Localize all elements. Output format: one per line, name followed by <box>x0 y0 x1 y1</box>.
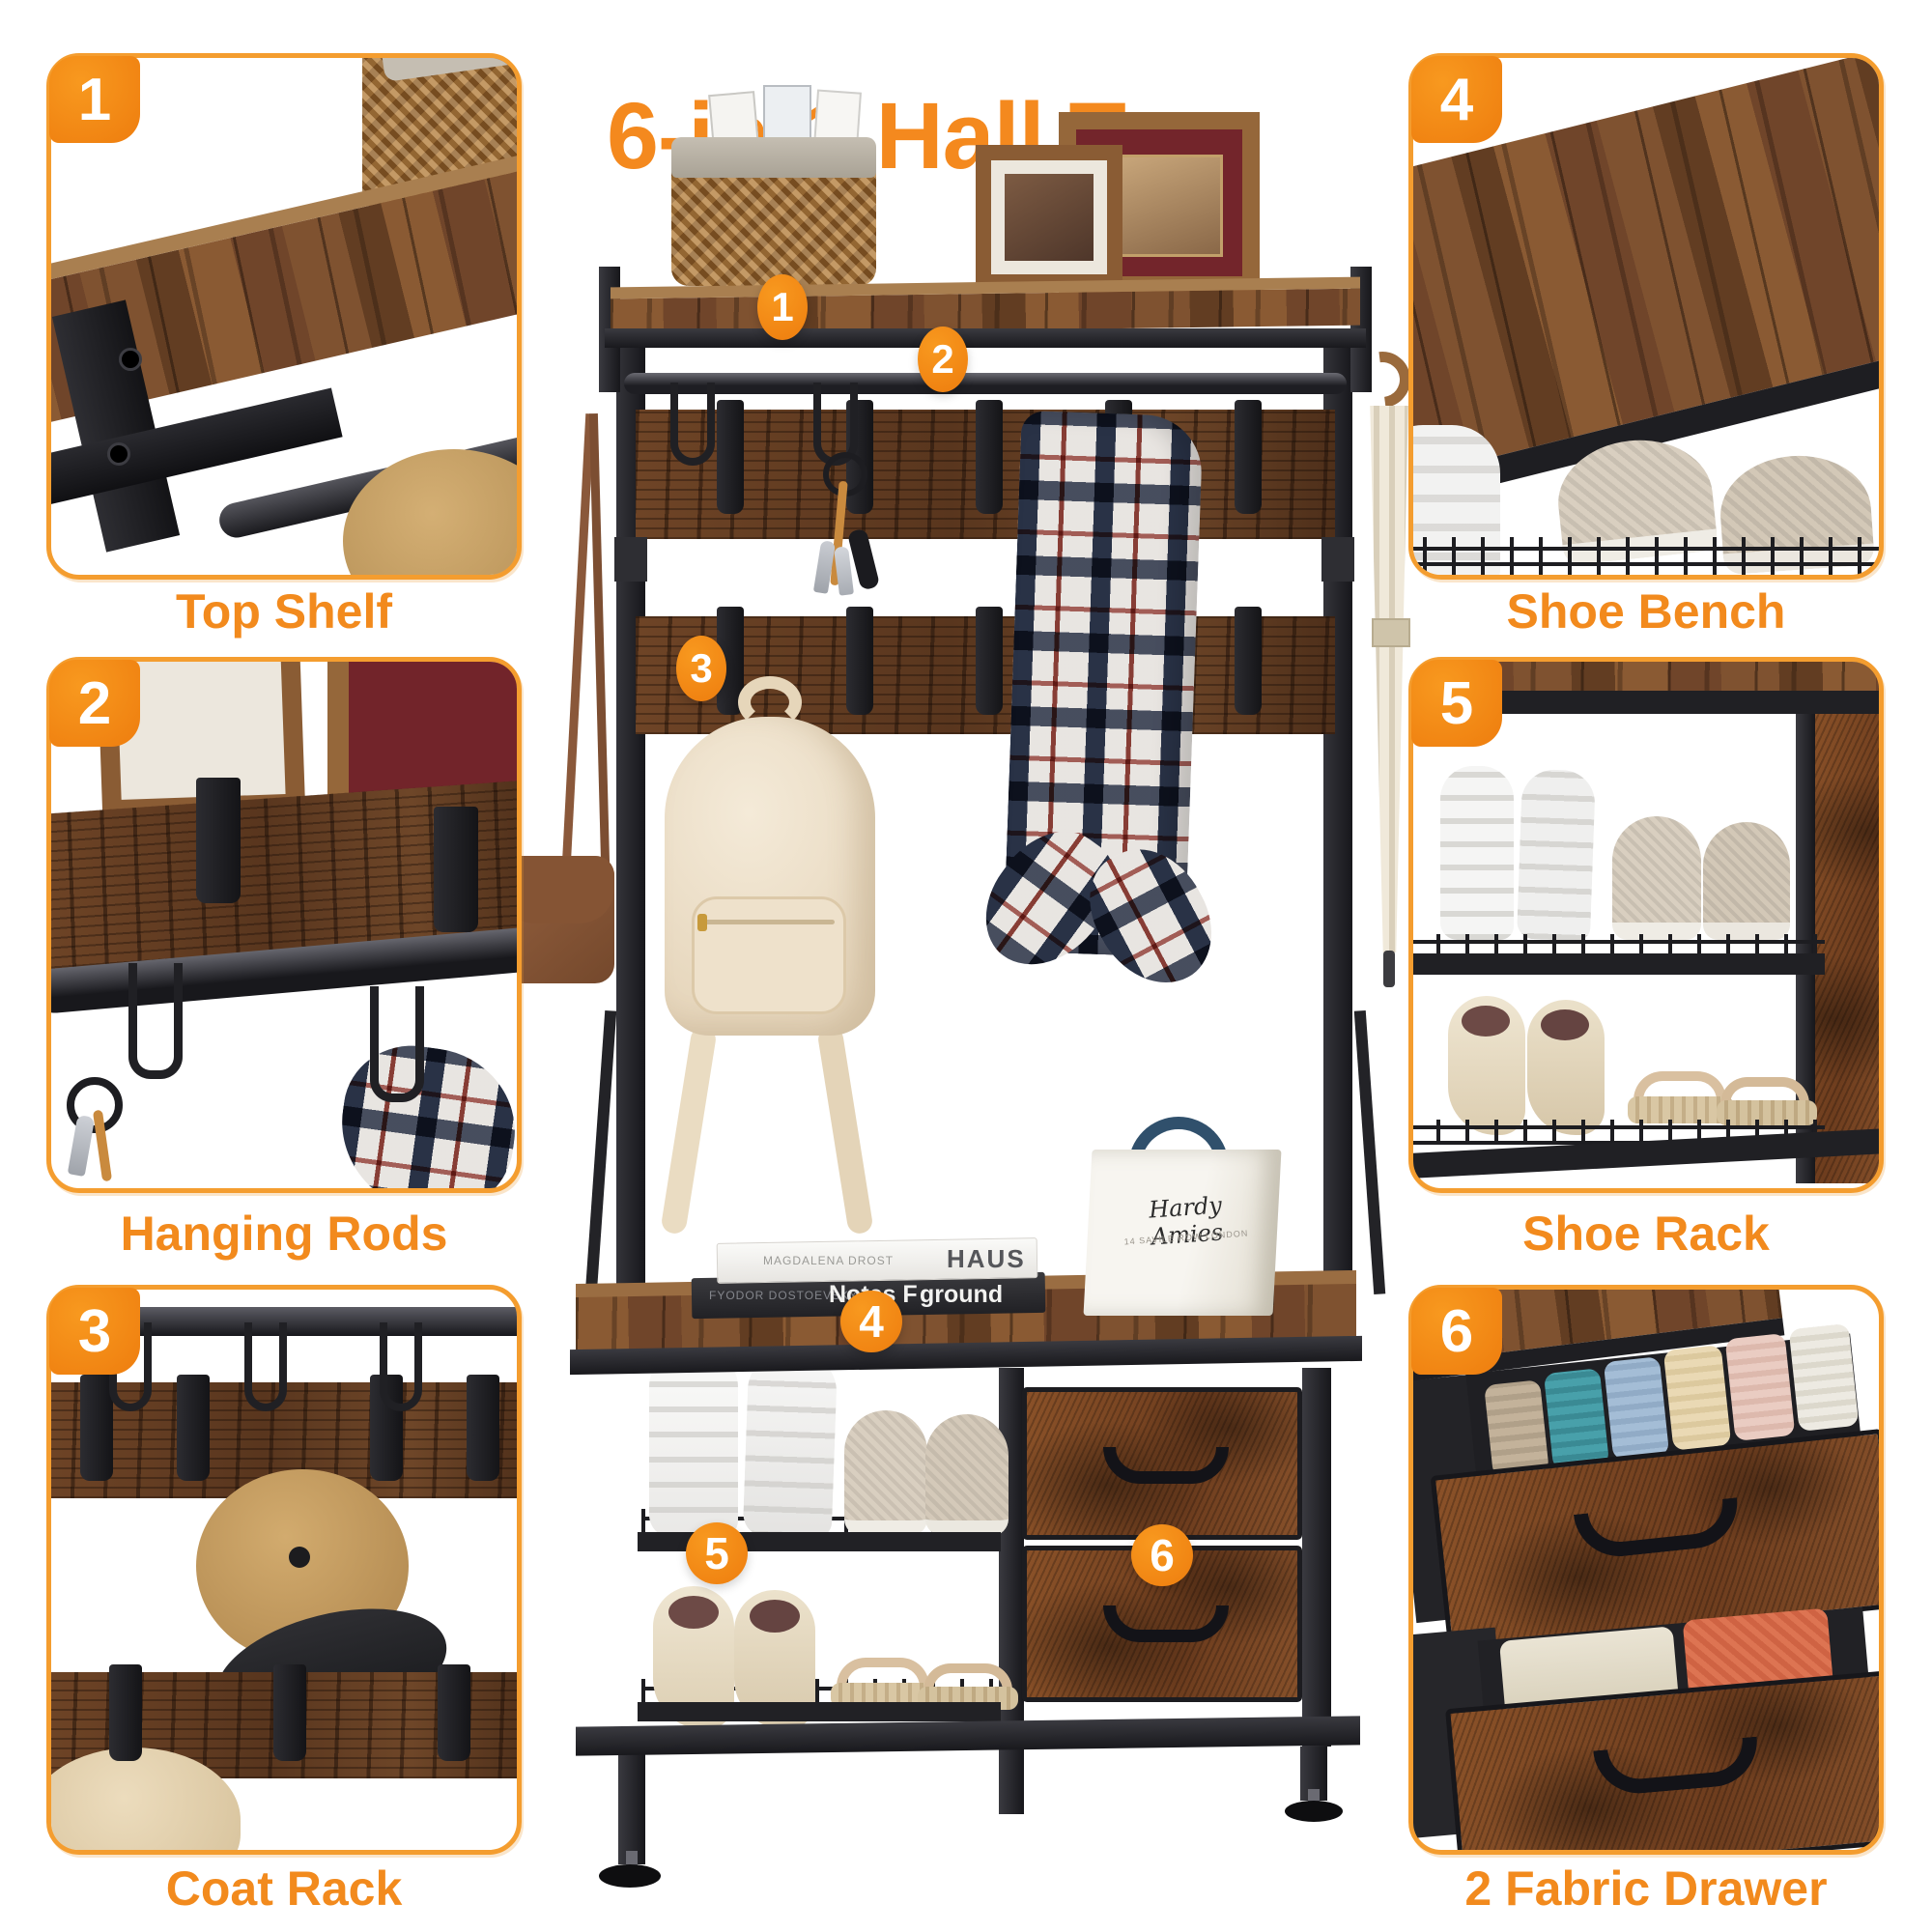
flat-hook <box>717 400 744 514</box>
top-shelf-board <box>611 277 1360 336</box>
key <box>834 546 854 595</box>
panel-label-shoe-bench: Shoe Bench <box>1408 583 1884 639</box>
crossbody-bag-strap <box>589 413 610 866</box>
callout-3-number: 3 <box>690 645 712 692</box>
panel-number-badge: 5 <box>1411 660 1502 747</box>
tan-hat <box>343 449 517 575</box>
panel-number-badge: 3 <box>49 1288 140 1375</box>
panel-number: 3 <box>78 1297 111 1366</box>
callout-4-number: 4 <box>859 1295 884 1348</box>
beige-sneaker <box>925 1414 1009 1536</box>
white-boot <box>1440 766 1514 940</box>
panel-label-coat-rack: Coat Rack <box>46 1861 522 1917</box>
callout-2-number: 2 <box>931 336 953 383</box>
panel-label-shoe-rack: Shoe Rack <box>1408 1206 1884 1262</box>
backpack-zipper-pull <box>697 914 707 931</box>
pump-interior <box>750 1600 800 1633</box>
shoe-shelf-bar-lower <box>638 1702 1001 1721</box>
fabric-drawer-closeup-photo <box>1413 1290 1879 1850</box>
panel-number: 5 <box>1440 669 1473 738</box>
folded-clothes <box>1604 1356 1669 1461</box>
white-boot <box>1517 769 1596 942</box>
black-book-title-right: ground <box>920 1281 1003 1309</box>
coat-rack-closeup-photo <box>51 1290 517 1850</box>
feature-panel-hanging-rods: 2 <box>46 657 522 1193</box>
callout-5: 5 <box>686 1522 748 1584</box>
flat-hook <box>434 807 478 932</box>
panel-number: 1 <box>78 66 111 134</box>
feature-panel-fabric-drawers: 6 <box>1408 1285 1884 1855</box>
white-boot <box>649 1349 738 1538</box>
feature-panel-coat-rack: 3 <box>46 1285 522 1855</box>
panel-label-top-shelf: Top Shelf <box>46 583 522 639</box>
umbrella-tip <box>1383 951 1395 987</box>
picture-frame-small-photo <box>1005 174 1094 261</box>
hanging-rod <box>624 373 1347 394</box>
folded-clothes <box>1725 1333 1796 1441</box>
backpack-front-pocket <box>692 896 846 1014</box>
backpack-strap <box>660 1025 717 1235</box>
folded-clothes <box>1484 1379 1549 1478</box>
shelf-bar-upper <box>1413 953 1825 975</box>
white-book-title: HAUS <box>947 1244 1026 1274</box>
s-hook <box>370 986 424 1102</box>
backpack-strap <box>816 1025 873 1235</box>
panel-number-badge: 2 <box>49 660 140 747</box>
flat-hook <box>438 1664 470 1761</box>
feature-panel-shoe-bench: 4 <box>1408 53 1884 580</box>
support-brace-right <box>1354 1010 1385 1294</box>
panel-number: 4 <box>1440 66 1473 134</box>
cap-button <box>289 1547 310 1568</box>
beige-sneaker <box>844 1410 927 1536</box>
drawer-handle <box>1103 1447 1229 1484</box>
callout-4: 4 <box>840 1291 902 1352</box>
front-left-leg <box>618 1747 645 1864</box>
folded-clothes <box>1663 1345 1732 1451</box>
flat-hook <box>177 1375 210 1481</box>
flat-hook <box>1235 607 1262 715</box>
flat-hook <box>1235 400 1262 514</box>
feature-panel-shoe-rack: 5 <box>1408 657 1884 1193</box>
flat-hook <box>109 1664 142 1761</box>
bolt <box>107 442 130 466</box>
panel-number: 6 <box>1440 1297 1473 1366</box>
callout-5-number: 5 <box>704 1527 729 1579</box>
panel-number: 2 <box>78 669 111 738</box>
backpack-zipper <box>703 920 835 924</box>
crossbody-bag-strap <box>562 413 595 867</box>
feature-panel-top-shelf: 1 <box>46 53 522 580</box>
leveling-foot <box>1285 1801 1343 1822</box>
umbrella <box>1364 406 1414 952</box>
white-book-author: MAGDALENA DROST <box>763 1254 894 1267</box>
callout-1-number: 1 <box>771 284 793 330</box>
flat-hook <box>196 778 241 903</box>
beige-sneaker <box>1703 822 1790 940</box>
flat-hook <box>976 607 1003 715</box>
flat-hook <box>467 1375 499 1481</box>
post-joint-plate <box>1321 537 1354 582</box>
folded-clothes <box>1789 1323 1860 1432</box>
key <box>68 1115 95 1177</box>
basket-fabric-liner <box>671 137 876 178</box>
s-hook <box>128 963 183 1079</box>
beige-sneaker <box>1612 816 1701 940</box>
callout-1: 1 <box>757 274 808 340</box>
s-hook <box>670 383 715 466</box>
pump-interior <box>1541 1009 1589 1040</box>
s-hook <box>380 1322 422 1411</box>
top-shelf-metal-frame <box>605 328 1366 348</box>
panel-label-fabric-drawers: 2 Fabric Drawer <box>1408 1861 1884 1917</box>
shoe-shelf-mesh <box>1413 537 1879 575</box>
callout-3: 3 <box>676 636 726 701</box>
drawer-side-post <box>1302 1368 1331 1747</box>
panel-label-hanging-rods: Hanging Rods <box>46 1206 522 1262</box>
callout-6: 6 <box>1131 1524 1193 1586</box>
leveling-foot <box>599 1864 661 1888</box>
callout-6-number: 6 <box>1150 1529 1175 1581</box>
panel-number-badge: 6 <box>1411 1288 1502 1375</box>
bolt <box>119 348 142 371</box>
pump-interior <box>668 1596 719 1629</box>
product-infographic: 6-in-1 Hall Tree <box>0 0 1932 1932</box>
umbrella-strap-band <box>1372 618 1410 647</box>
flat-hook <box>846 607 873 715</box>
support-brace-left <box>585 1010 616 1294</box>
pump-interior <box>1462 1006 1510 1037</box>
flat-hook <box>273 1664 306 1761</box>
post-joint-plate <box>614 537 647 582</box>
s-hook <box>244 1322 287 1411</box>
panel-number-badge: 1 <box>49 56 140 143</box>
white-boot <box>743 1350 838 1539</box>
flat-hook <box>80 1375 113 1481</box>
panel-number-badge: 4 <box>1411 56 1502 143</box>
callout-2: 2 <box>918 327 968 392</box>
drawer-handle <box>1103 1605 1229 1642</box>
flat-hook <box>976 400 1003 514</box>
folded-clothes <box>1544 1368 1609 1470</box>
